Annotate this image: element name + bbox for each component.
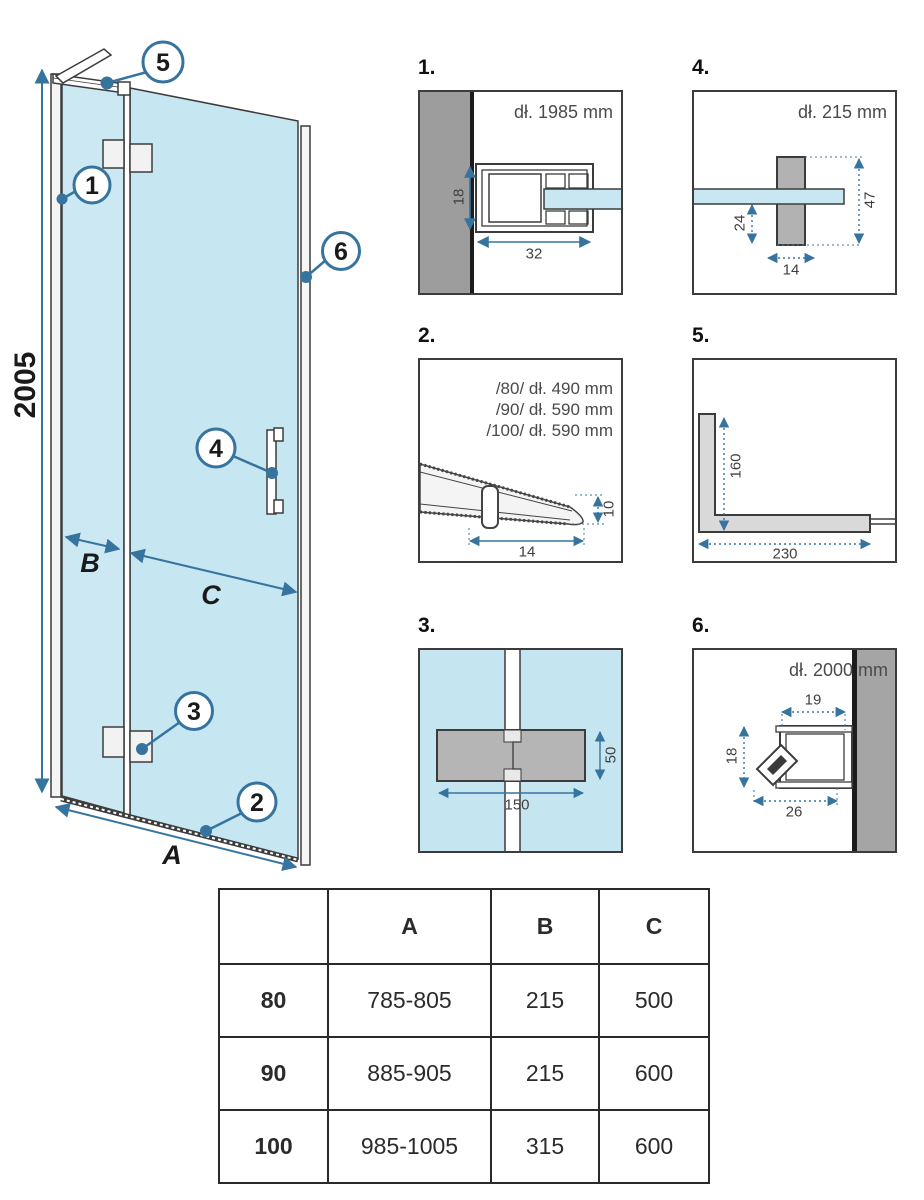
panel-6-dim-19: 19 <box>805 692 822 709</box>
table-row: 80 785-805 215 500 <box>219 964 709 1037</box>
top-clamp <box>118 82 130 95</box>
panel-2-label: 2. <box>418 324 436 348</box>
panel-2-dim-10: 10 <box>601 501 618 518</box>
panel-1-dim-18: 18 <box>451 189 468 206</box>
panel-6-dim-18: 18 <box>724 748 741 765</box>
table-header-c: C <box>599 889 709 964</box>
row-c-value: 600 <box>599 1037 709 1110</box>
panel-5-bracket-detail: 160 230 <box>692 358 897 563</box>
panel-2-length-80: /80/ dł. 490 mm <box>486 378 613 399</box>
table-row: 100 985-1005 315 600 <box>219 1110 709 1183</box>
panel-5-dim-160: 160 <box>728 453 745 478</box>
panel-2-dim-14: 14 <box>519 544 536 561</box>
panel-4-label: 4. <box>692 56 710 80</box>
bottom-hinge-plate-left <box>103 727 124 757</box>
width-c-label: C <box>201 580 221 610</box>
size-table: A B C 80 785-805 215 500 90 885-905 215 … <box>218 888 710 1184</box>
callout-6: 6 <box>334 238 348 266</box>
panel-1-length: dł. 1985 mm <box>514 102 613 123</box>
row-b-value: 315 <box>491 1110 599 1183</box>
panel-5-dim-230: 230 <box>772 546 797 563</box>
row-size: 80 <box>219 964 328 1037</box>
top-hinge-plate-right <box>130 144 152 172</box>
closing-profile <box>301 126 310 865</box>
row-c-value: 500 <box>599 964 709 1037</box>
panel-3-hinge-detail: 50 150 <box>418 648 623 853</box>
callout-4: 4 <box>209 435 223 463</box>
panel-1-dim-32: 32 <box>526 246 543 263</box>
top-hinge-plate-left <box>103 140 124 168</box>
panel-3-label: 3. <box>418 614 436 638</box>
row-b-value: 215 <box>491 1037 599 1110</box>
panel-5-label: 5. <box>692 324 710 348</box>
row-size: 100 <box>219 1110 328 1183</box>
panel-4-handle-detail: dł. 215 mm 47 24 14 <box>692 90 897 295</box>
installation-diagram-page: 2005 A B C 1 2 3 <box>0 0 924 1200</box>
panel-4-dim-24: 24 <box>732 215 749 232</box>
panel-2-seal-detail: /80/ dł. 490 mm /90/ dł. 590 mm /100/ dł… <box>418 358 623 563</box>
panel-4-dim-47: 47 <box>862 192 879 209</box>
width-b-label: B <box>80 548 100 578</box>
panel-2-length-100: /100/ dł. 590 mm <box>486 420 613 441</box>
panel-5-drawing <box>694 360 895 561</box>
panel-2-lengths: /80/ dł. 490 mm /90/ dł. 590 mm /100/ dł… <box>486 378 613 441</box>
panel-6-dim-26: 26 <box>786 804 803 821</box>
callout-3: 3 <box>187 698 201 726</box>
table-header-row: A B C <box>219 889 709 964</box>
panel-3-drawing <box>420 650 621 851</box>
panel-2-length-90: /90/ dł. 590 mm <box>486 399 613 420</box>
row-a-value: 985-1005 <box>328 1110 491 1183</box>
wall-profile <box>51 74 61 797</box>
seal-profile <box>420 464 583 525</box>
callout-2: 2 <box>250 789 264 817</box>
table-row: 90 885-905 215 600 <box>219 1037 709 1110</box>
panel-3-dim-50: 50 <box>603 747 620 764</box>
panel-1-label: 1. <box>418 56 436 80</box>
row-a-value: 785-805 <box>328 964 491 1037</box>
row-size: 90 <box>219 1037 328 1110</box>
row-b-value: 215 <box>491 964 599 1037</box>
height-dim-label: 2005 <box>9 352 42 419</box>
hinge-gap <box>124 87 130 816</box>
panel-1-wall-profile-detail: dł. 1985 mm 18 32 <box>418 90 623 295</box>
row-c-value: 600 <box>599 1110 709 1183</box>
table-corner-cell <box>219 889 328 964</box>
panel-4-dim-14: 14 <box>783 262 800 279</box>
table-header-b: B <box>491 889 599 964</box>
width-a-label: A <box>161 840 182 870</box>
panel-6-length: dł. 2000 mm <box>789 660 888 681</box>
callout-1: 1 <box>85 172 99 200</box>
panel-3-dim-150: 150 <box>504 797 529 814</box>
panel-6-magnet-profile-detail: dł. 2000 mm 19 18 26 <box>692 648 897 853</box>
row-a-value: 885-905 <box>328 1037 491 1110</box>
callout-5: 5 <box>156 49 170 77</box>
glass-section <box>694 189 844 204</box>
panel-4-length: dł. 215 mm <box>798 102 887 123</box>
seal-clip-loop <box>482 486 498 528</box>
panel-6-label: 6. <box>692 614 710 638</box>
main-door-drawing: 2005 A B C 1 2 3 <box>0 0 412 890</box>
glass-section <box>544 189 621 209</box>
table-header-a: A <box>328 889 491 964</box>
